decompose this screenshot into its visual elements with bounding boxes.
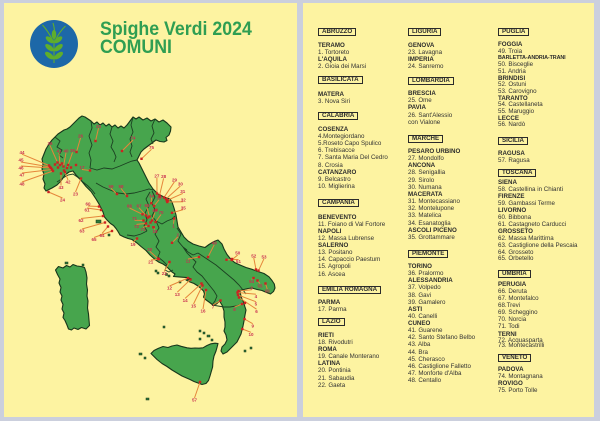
svg-text:40: 40 xyxy=(63,148,69,153)
svg-text:20: 20 xyxy=(147,247,153,252)
svg-text:19: 19 xyxy=(130,242,136,247)
svg-text:45: 45 xyxy=(18,158,24,163)
svg-text:35: 35 xyxy=(181,205,187,210)
svg-text:41: 41 xyxy=(56,149,62,154)
svg-text:31: 31 xyxy=(180,189,186,194)
svg-text:74: 74 xyxy=(130,136,136,141)
svg-text:49: 49 xyxy=(212,241,218,246)
svg-text:11: 11 xyxy=(186,259,191,264)
svg-text:24: 24 xyxy=(60,198,66,203)
svg-text:5: 5 xyxy=(255,301,258,306)
svg-text:42: 42 xyxy=(65,180,71,185)
svg-text:66: 66 xyxy=(127,204,133,209)
svg-text:69: 69 xyxy=(152,208,158,213)
svg-text:14: 14 xyxy=(183,298,189,303)
svg-text:32: 32 xyxy=(181,198,187,203)
svg-text:70: 70 xyxy=(158,210,164,215)
svg-text:51: 51 xyxy=(236,259,242,264)
svg-text:29: 29 xyxy=(172,177,178,182)
svg-text:50: 50 xyxy=(235,251,241,256)
svg-text:27: 27 xyxy=(154,174,160,179)
svg-text:21: 21 xyxy=(148,260,154,265)
svg-text:46: 46 xyxy=(18,166,24,171)
svg-text:15: 15 xyxy=(191,304,197,309)
svg-text:44: 44 xyxy=(19,150,25,155)
svg-text:23: 23 xyxy=(73,192,79,197)
svg-text:56: 56 xyxy=(265,289,271,294)
svg-text:6: 6 xyxy=(255,309,258,314)
svg-text:64: 64 xyxy=(99,233,105,238)
svg-text:10: 10 xyxy=(248,332,254,337)
svg-text:57: 57 xyxy=(192,398,198,403)
svg-text:26: 26 xyxy=(78,134,84,139)
svg-text:63: 63 xyxy=(79,229,85,234)
svg-text:68: 68 xyxy=(144,203,150,208)
svg-text:71: 71 xyxy=(132,216,138,221)
svg-text:58: 58 xyxy=(118,184,124,189)
svg-text:60: 60 xyxy=(85,202,91,207)
svg-text:16: 16 xyxy=(200,309,206,314)
svg-text:4: 4 xyxy=(255,294,258,299)
svg-text:12: 12 xyxy=(167,286,173,291)
svg-text:36: 36 xyxy=(47,141,53,146)
svg-text:39: 39 xyxy=(70,148,76,153)
svg-text:72: 72 xyxy=(134,224,140,229)
svg-text:61: 61 xyxy=(84,208,90,213)
svg-text:53: 53 xyxy=(261,254,267,259)
svg-text:48: 48 xyxy=(19,182,25,187)
svg-text:67: 67 xyxy=(136,203,142,208)
svg-text:65: 65 xyxy=(91,237,97,242)
svg-text:17: 17 xyxy=(79,165,85,170)
svg-text:54: 54 xyxy=(249,279,255,284)
svg-text:22: 22 xyxy=(162,271,168,276)
svg-text:18: 18 xyxy=(152,229,158,234)
svg-text:9: 9 xyxy=(251,323,254,328)
svg-text:25: 25 xyxy=(96,124,102,129)
svg-text:34: 34 xyxy=(149,193,155,198)
svg-text:59: 59 xyxy=(108,184,114,189)
svg-text:30: 30 xyxy=(178,182,184,187)
svg-text:43: 43 xyxy=(58,185,64,190)
svg-text:13: 13 xyxy=(175,292,181,297)
svg-text:75: 75 xyxy=(149,145,155,150)
svg-text:47: 47 xyxy=(19,173,25,178)
svg-text:28: 28 xyxy=(161,174,167,179)
svg-text:33: 33 xyxy=(156,196,162,201)
svg-text:52: 52 xyxy=(251,253,257,258)
svg-text:73: 73 xyxy=(140,227,146,232)
svg-text:62: 62 xyxy=(78,218,84,223)
svg-text:55: 55 xyxy=(257,283,263,288)
